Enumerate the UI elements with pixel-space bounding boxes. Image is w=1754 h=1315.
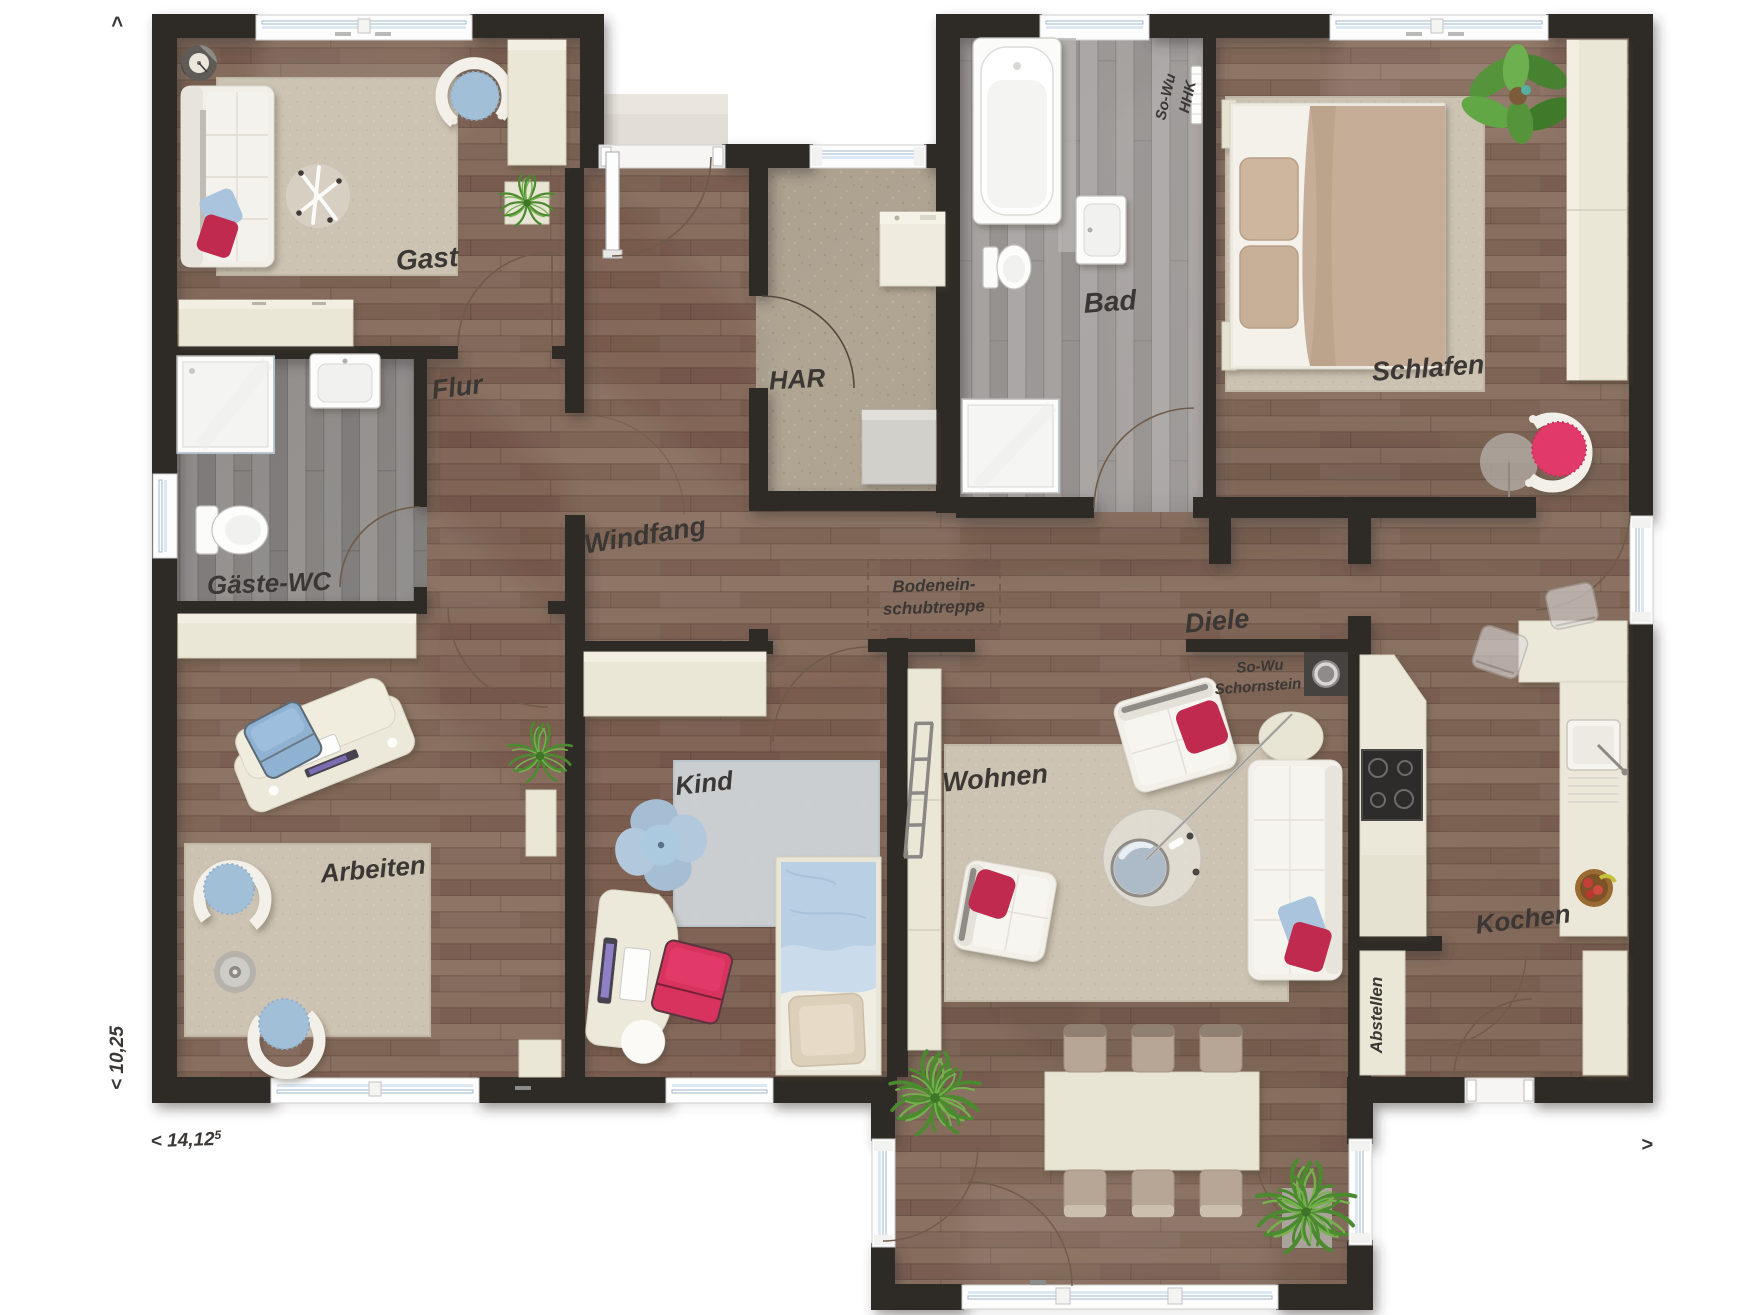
svg-text:< 10,25: < 10,25 — [107, 1026, 128, 1090]
svg-text:< 14,125: < 14,125 — [150, 1128, 222, 1152]
svg-text:Kind: Kind — [674, 765, 736, 801]
svg-text:Abstellen: Abstellen — [1367, 977, 1386, 1055]
svg-text:Flur: Flur — [430, 369, 486, 405]
svg-text:schubtreppe: schubtreppe — [883, 596, 986, 619]
svg-text:Gäste-WC: Gäste-WC — [206, 566, 332, 600]
svg-text:Gast: Gast — [395, 241, 461, 276]
svg-text:Bodenein-: Bodenein- — [892, 575, 976, 597]
svg-text:>: > — [107, 16, 129, 28]
svg-text:So-Wu: So-Wu — [1236, 657, 1284, 677]
svg-text:Bad: Bad — [1083, 284, 1139, 319]
svg-text:HAR: HAR — [768, 363, 826, 396]
svg-text:Diele: Diele — [1184, 603, 1251, 639]
svg-text:>: > — [1641, 1134, 1653, 1156]
